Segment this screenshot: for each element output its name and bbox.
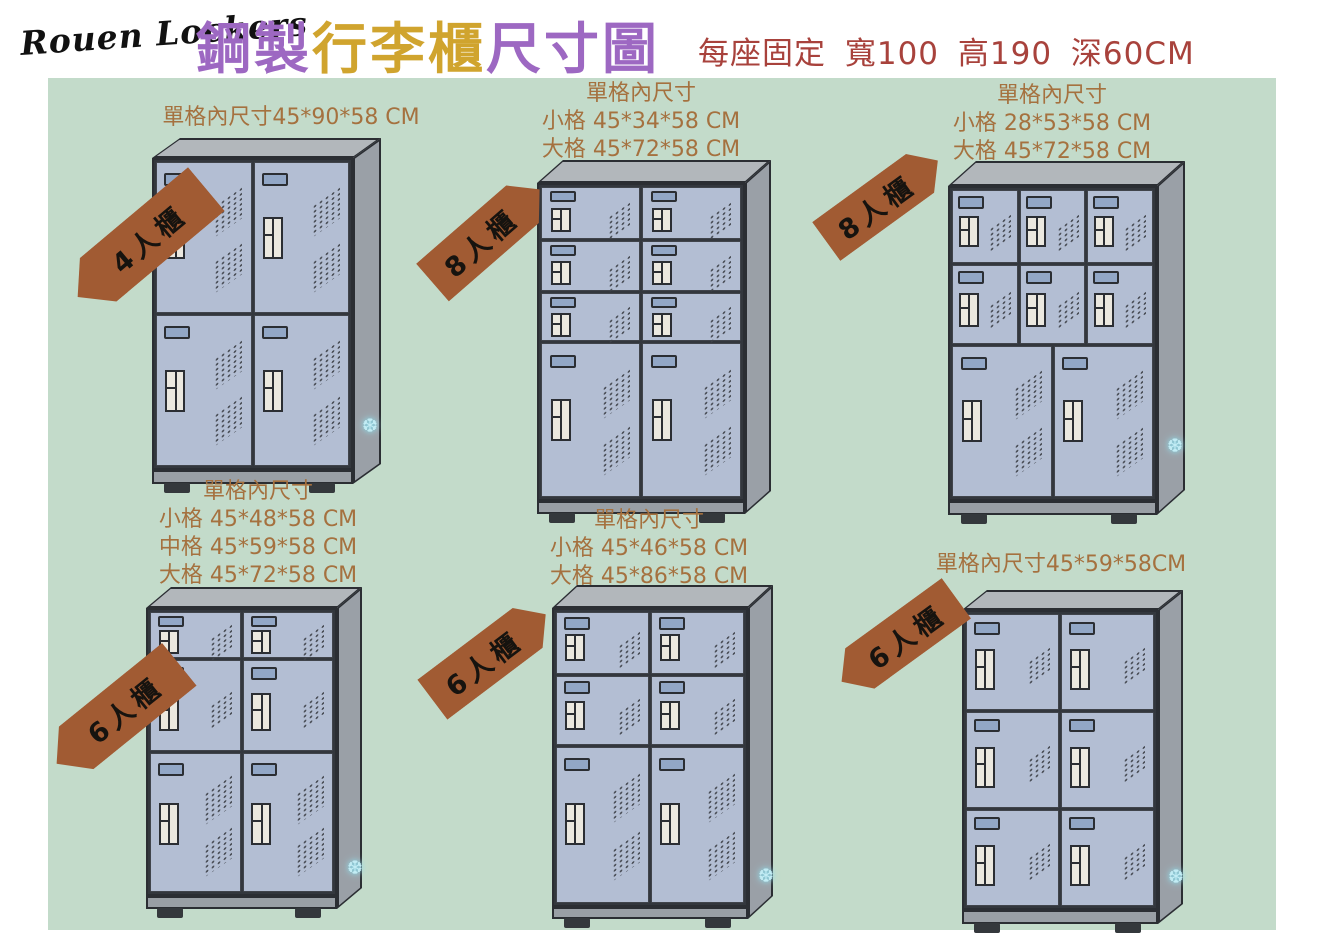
locker-door bbox=[541, 187, 640, 239]
locker-door bbox=[556, 676, 649, 745]
locker-door bbox=[651, 612, 744, 674]
locker-6-door-equal: ❆ bbox=[962, 590, 1183, 936]
vent-holes bbox=[618, 697, 640, 736]
dim-label-line: 大格 45*72*58 CM bbox=[542, 136, 740, 164]
dim-label-line: 單格內尺寸45*59*58CM bbox=[936, 551, 1186, 579]
door-number-plate bbox=[158, 763, 184, 776]
vent-holes bbox=[703, 368, 731, 420]
door-number-plate bbox=[974, 817, 1000, 830]
vent-holes bbox=[602, 368, 630, 420]
door-lock-handle bbox=[1094, 216, 1114, 247]
locker-door bbox=[952, 190, 1018, 263]
door-lock-handle bbox=[1070, 649, 1090, 690]
door-row bbox=[952, 190, 1153, 263]
locker-8-door-stacked bbox=[537, 160, 771, 526]
vent-holes bbox=[1014, 426, 1042, 478]
dim-label-line: 單格內尺寸 bbox=[953, 82, 1151, 110]
locker-door bbox=[556, 747, 649, 903]
dim-label-line: 單格內尺寸 bbox=[550, 507, 748, 535]
door-number-plate bbox=[974, 622, 1000, 635]
dim-label-line: 大格 45*72*58 CM bbox=[159, 562, 357, 590]
dim-label-line: 單格內尺寸 bbox=[542, 80, 740, 108]
locker-door bbox=[156, 315, 252, 466]
locker-door bbox=[541, 343, 640, 497]
page-title: 鋼製行李櫃尺寸圖 bbox=[196, 4, 660, 84]
vent-holes bbox=[602, 426, 630, 478]
vent-holes bbox=[1028, 745, 1050, 784]
door-lock-handle bbox=[165, 370, 185, 412]
sparkle-watermark: ❆ bbox=[1168, 866, 1184, 888]
vent-holes bbox=[608, 201, 630, 240]
locker-8-door-mixed: ❆ bbox=[948, 161, 1185, 527]
door-lock-handle bbox=[660, 803, 680, 845]
door-lock-handle bbox=[959, 216, 979, 247]
door-row bbox=[952, 265, 1153, 344]
door-lock-handle bbox=[975, 845, 995, 886]
vent-holes bbox=[1057, 290, 1079, 329]
dim-label-line: 大格 45*86*58 CM bbox=[550, 563, 748, 591]
door-number-plate bbox=[651, 191, 677, 202]
sparkle-watermark: ❆ bbox=[1167, 435, 1183, 457]
locker-base bbox=[962, 910, 1158, 924]
door-number-plate bbox=[651, 245, 677, 256]
title-part-steel: 鋼製 bbox=[196, 17, 312, 81]
door-lock-handle bbox=[551, 261, 571, 285]
door-lock-handle bbox=[251, 803, 271, 845]
locker-door bbox=[556, 612, 649, 674]
locker-door bbox=[966, 712, 1059, 808]
vent-holes bbox=[1028, 647, 1050, 686]
locker-foot bbox=[705, 918, 731, 928]
door-lock-handle bbox=[660, 701, 680, 730]
door-number-plate bbox=[550, 191, 576, 202]
door-number-plate bbox=[564, 758, 590, 771]
door-number-plate bbox=[564, 681, 590, 694]
locker-foot bbox=[1115, 923, 1141, 933]
vent-holes bbox=[707, 772, 735, 824]
door-lock-handle bbox=[660, 634, 680, 660]
door-lock-handle bbox=[1094, 293, 1114, 327]
door-lock-handle bbox=[959, 293, 979, 327]
locker-foot bbox=[564, 918, 590, 928]
locker-door bbox=[541, 293, 640, 342]
locker-door bbox=[651, 676, 744, 745]
door-number-plate bbox=[958, 196, 984, 209]
door-row bbox=[541, 187, 741, 239]
door-lock-handle bbox=[652, 313, 672, 337]
locker-side-panel bbox=[745, 160, 771, 514]
title-part-luggage-locker: 行李櫃 bbox=[312, 17, 486, 81]
vent-holes bbox=[1124, 213, 1146, 252]
vent-holes bbox=[312, 243, 340, 295]
door-lock-handle bbox=[565, 634, 585, 660]
vent-holes bbox=[312, 396, 340, 448]
vent-holes bbox=[709, 306, 731, 345]
dim-label-6-door-small-mid-large: 單格內尺寸小格 45*48*58 CM中格 45*59*58 CM大格 45*7… bbox=[159, 478, 357, 590]
vent-holes bbox=[204, 774, 232, 826]
door-number-plate bbox=[158, 616, 184, 627]
door-row bbox=[541, 241, 741, 291]
locker-door bbox=[254, 162, 350, 313]
dim-label-6-door-small-large: 單格內尺寸小格 45*46*58 CM大格 45*86*58 CM bbox=[550, 507, 748, 591]
sparkle-watermark: ❆ bbox=[347, 857, 363, 879]
door-row bbox=[952, 346, 1153, 498]
vent-holes bbox=[713, 697, 735, 736]
locker-door bbox=[642, 293, 741, 342]
poster: Rouen Lockers 鋼製行李櫃尺寸圖 每座固定 寬100 高190 深6… bbox=[0, 0, 1330, 940]
door-lock-handle bbox=[962, 400, 982, 442]
vent-holes bbox=[1014, 370, 1042, 422]
vent-holes bbox=[1115, 426, 1143, 478]
vent-holes bbox=[296, 826, 324, 878]
door-row bbox=[966, 712, 1154, 808]
door-lock-handle bbox=[652, 208, 672, 232]
door-lock-handle bbox=[1026, 293, 1046, 327]
locker-door bbox=[254, 315, 350, 466]
door-lock-handle bbox=[263, 217, 283, 259]
locker-top-panel bbox=[146, 587, 362, 608]
locker-door bbox=[642, 241, 741, 291]
door-lock-handle bbox=[652, 261, 672, 285]
door-lock-handle bbox=[551, 313, 571, 337]
locker-foot bbox=[961, 514, 987, 524]
door-row bbox=[150, 753, 333, 892]
door-number-plate bbox=[974, 719, 1000, 732]
vent-holes bbox=[302, 690, 324, 729]
dim-label-line: 小格 45*34*58 CM bbox=[542, 108, 740, 136]
door-lock-handle bbox=[1026, 216, 1046, 247]
door-number-plate bbox=[1062, 357, 1088, 370]
door-lock-handle bbox=[1070, 845, 1090, 886]
vent-holes bbox=[1123, 745, 1145, 784]
sparkle-watermark: ❆ bbox=[758, 865, 774, 887]
locker-front bbox=[146, 608, 337, 896]
door-number-plate bbox=[1093, 271, 1119, 284]
vent-holes bbox=[989, 213, 1011, 252]
dim-label-line: 單格內尺寸45*90*58 CM bbox=[162, 104, 419, 132]
locker-door bbox=[1061, 614, 1154, 710]
vent-holes bbox=[210, 624, 232, 663]
dim-label-8-door-mixed: 單格內尺寸小格 28*53*58 CM大格 45*72*58 CM bbox=[953, 82, 1151, 166]
door-row bbox=[150, 612, 333, 658]
door-row bbox=[556, 612, 744, 674]
door-row bbox=[156, 315, 349, 466]
vent-holes bbox=[214, 339, 242, 391]
vent-holes bbox=[1123, 843, 1145, 882]
title-part-dimension-chart: 尺寸圖 bbox=[486, 17, 660, 81]
door-number-plate bbox=[164, 326, 190, 339]
vent-holes bbox=[709, 201, 731, 240]
vent-holes bbox=[608, 254, 630, 293]
locker-front bbox=[552, 608, 748, 907]
vent-holes bbox=[608, 306, 630, 345]
locker-door bbox=[952, 346, 1052, 498]
locker-door bbox=[1087, 190, 1153, 263]
door-row bbox=[556, 676, 744, 745]
dim-label-line: 小格 45*46*58 CM bbox=[550, 535, 748, 563]
locker-door bbox=[1087, 265, 1153, 344]
door-number-plate bbox=[550, 355, 576, 368]
door-lock-handle bbox=[551, 399, 571, 441]
door-number-plate bbox=[659, 681, 685, 694]
door-number-plate bbox=[262, 173, 288, 186]
door-row bbox=[541, 343, 741, 497]
door-number-plate bbox=[1026, 196, 1052, 209]
door-number-plate bbox=[251, 616, 277, 627]
locker-door bbox=[243, 660, 334, 751]
vent-holes bbox=[1057, 213, 1079, 252]
vent-holes bbox=[1115, 370, 1143, 422]
locker-door bbox=[541, 241, 640, 291]
locker-door bbox=[243, 612, 334, 658]
locker-door bbox=[952, 265, 1018, 344]
door-lock-handle bbox=[251, 630, 271, 654]
locker-door bbox=[1054, 346, 1154, 498]
vent-holes bbox=[1028, 843, 1050, 882]
dim-label-line: 大格 45*72*58 CM bbox=[953, 138, 1151, 166]
door-lock-handle bbox=[565, 701, 585, 730]
dim-label-line: 中格 45*59*58 CM bbox=[159, 534, 357, 562]
door-lock-handle bbox=[975, 649, 995, 690]
door-number-plate bbox=[550, 245, 576, 256]
vent-holes bbox=[703, 426, 731, 478]
dim-label-line: 單格內尺寸 bbox=[159, 478, 357, 506]
door-lock-handle bbox=[975, 747, 995, 788]
door-number-plate bbox=[550, 297, 576, 308]
dim-label-line: 小格 28*53*58 CM bbox=[953, 110, 1151, 138]
vent-holes bbox=[1124, 290, 1146, 329]
door-number-plate bbox=[251, 763, 277, 776]
locker-front bbox=[962, 610, 1158, 910]
locker-foot bbox=[1111, 514, 1137, 524]
door-lock-handle bbox=[565, 803, 585, 845]
vent-holes bbox=[312, 339, 340, 391]
vent-holes bbox=[989, 290, 1011, 329]
door-number-plate bbox=[1069, 622, 1095, 635]
locker-foot bbox=[974, 923, 1000, 933]
door-number-plate bbox=[262, 326, 288, 339]
door-lock-handle bbox=[251, 693, 271, 732]
vent-holes bbox=[618, 630, 640, 669]
vent-holes bbox=[204, 826, 232, 878]
locker-base bbox=[948, 501, 1157, 515]
locker-door bbox=[651, 747, 744, 903]
door-number-plate bbox=[1069, 817, 1095, 830]
vent-holes bbox=[312, 186, 340, 238]
door-number-plate bbox=[564, 617, 590, 630]
door-number-plate bbox=[659, 617, 685, 630]
door-number-plate bbox=[251, 667, 277, 680]
locker-door bbox=[642, 343, 741, 497]
vent-holes bbox=[709, 254, 731, 293]
door-lock-handle bbox=[159, 803, 179, 845]
locker-door bbox=[966, 614, 1059, 710]
locker-side-panel bbox=[1157, 161, 1185, 515]
vent-holes bbox=[713, 630, 735, 669]
vent-holes bbox=[210, 690, 232, 729]
locker-foot bbox=[295, 908, 321, 918]
vent-holes bbox=[707, 830, 735, 882]
door-number-plate bbox=[651, 297, 677, 308]
dim-label-6-door-equal: 單格內尺寸45*59*58CM bbox=[936, 551, 1186, 579]
locker-6-door-small-large: ❆ bbox=[552, 585, 773, 931]
door-lock-handle bbox=[652, 399, 672, 441]
door-row bbox=[966, 614, 1154, 710]
overall-dimensions-note: 每座固定 寬100 高190 深60CM bbox=[698, 28, 1195, 73]
vent-holes bbox=[612, 830, 640, 882]
dim-label-line: 小格 45*48*58 CM bbox=[159, 506, 357, 534]
locker-door bbox=[150, 753, 241, 892]
door-number-plate bbox=[651, 355, 677, 368]
door-number-plate bbox=[1026, 271, 1052, 284]
locker-top-panel bbox=[962, 590, 1183, 610]
door-lock-handle bbox=[1063, 400, 1083, 442]
locker-door bbox=[966, 810, 1059, 906]
vent-holes bbox=[214, 396, 242, 448]
dim-label-4-door: 單格內尺寸45*90*58 CM bbox=[162, 104, 419, 132]
sparkle-watermark: ❆ bbox=[362, 415, 378, 437]
locker-front bbox=[537, 183, 745, 501]
door-number-plate bbox=[958, 271, 984, 284]
locker-door bbox=[243, 753, 334, 892]
door-row bbox=[556, 747, 744, 903]
vent-holes bbox=[612, 772, 640, 824]
locker-door bbox=[1020, 265, 1086, 344]
door-number-plate bbox=[1069, 719, 1095, 732]
vent-holes bbox=[214, 243, 242, 295]
dim-label-8-door-stacked: 單格內尺寸小格 45*34*58 CM大格 45*72*58 CM bbox=[542, 80, 740, 164]
locker-door bbox=[1020, 190, 1086, 263]
vent-holes bbox=[1123, 647, 1145, 686]
door-number-plate bbox=[1093, 196, 1119, 209]
locker-foot bbox=[157, 908, 183, 918]
locker-door bbox=[1061, 712, 1154, 808]
locker-door bbox=[642, 187, 741, 239]
locker-front bbox=[948, 186, 1157, 501]
door-row bbox=[966, 810, 1154, 906]
locker-6-door-small-mid-large: ❆ bbox=[146, 587, 362, 921]
vent-holes bbox=[302, 624, 324, 663]
door-lock-handle bbox=[1070, 747, 1090, 788]
vent-holes bbox=[296, 774, 324, 826]
door-lock-handle bbox=[551, 208, 571, 232]
locker-door bbox=[1061, 810, 1154, 906]
door-row bbox=[541, 293, 741, 342]
locker-top-panel bbox=[152, 138, 381, 158]
door-lock-handle bbox=[263, 370, 283, 412]
door-number-plate bbox=[659, 758, 685, 771]
door-number-plate bbox=[961, 357, 987, 370]
